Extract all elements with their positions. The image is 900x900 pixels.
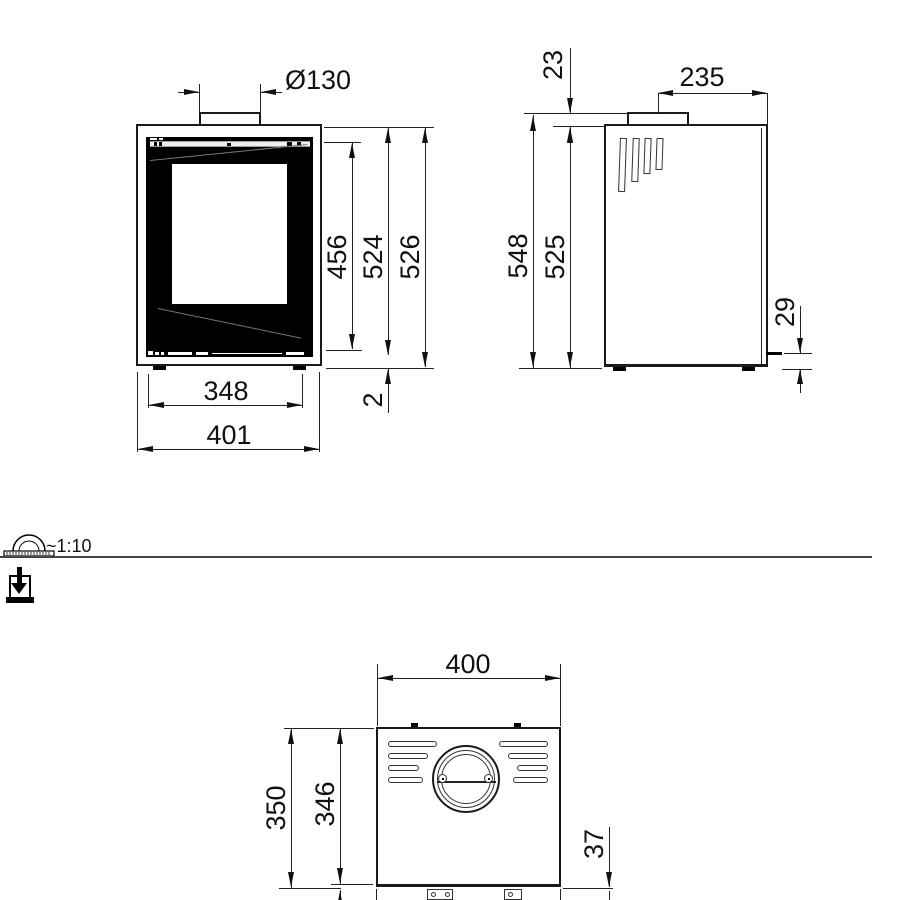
arrowhead-up	[337, 891, 343, 900]
arrowhead-right	[287, 402, 302, 408]
air-control-lever	[196, 352, 208, 355]
shape	[7, 552, 49, 555]
solid-mark	[159, 142, 162, 146]
dimension-line	[340, 728, 341, 884]
arrowhead-down	[385, 340, 391, 355]
arrowhead-up	[288, 729, 294, 744]
dimension-line	[376, 889, 377, 900]
download-arrow-icon	[11, 583, 27, 594]
dimension-line	[761, 128, 762, 364]
side-foot	[742, 367, 755, 371]
highlight-mark	[161, 352, 164, 355]
dimension-line	[284, 728, 374, 729]
solid-mark	[6, 597, 34, 603]
dimension-line	[524, 113, 628, 114]
dim-front-inner-width: 348	[186, 377, 266, 405]
circle-detail	[445, 892, 450, 897]
dimension-line	[658, 94, 659, 113]
scale-label: ~1:10	[46, 536, 92, 557]
dimension-line	[767, 93, 768, 125]
dim-top-depth-body: 346	[311, 764, 339, 844]
dimension-line	[377, 664, 378, 726]
arrowhead-up	[797, 369, 803, 384]
dim-front-body-height: 524	[359, 217, 387, 297]
download-button[interactable]	[6, 566, 38, 606]
arrowhead-up	[385, 128, 391, 143]
arrowhead-down	[567, 352, 573, 367]
dimension-line	[560, 664, 561, 726]
separator-line	[0, 556, 872, 558]
solid-mark	[514, 723, 521, 727]
shape	[13, 535, 45, 551]
front-glass-window	[172, 164, 287, 304]
highlight-mark	[212, 353, 282, 354]
dimension-line	[658, 93, 767, 94]
dimension-line	[137, 372, 138, 452]
front-foot	[293, 366, 306, 370]
top-vent-slot	[517, 765, 548, 771]
dim-top-depth-total: 350	[262, 768, 290, 848]
arrowhead-up	[567, 128, 573, 143]
dim-front-flue-diameter: Ø130	[285, 66, 380, 94]
arrowhead-right	[752, 90, 767, 96]
top-vent-slot	[388, 753, 428, 759]
dim-side-lever-height: 29	[771, 272, 799, 352]
dim-side-total-height: 548	[504, 216, 532, 296]
dimension-line	[533, 115, 534, 368]
top-vent-slot	[388, 741, 437, 747]
solid-mark	[488, 778, 490, 780]
highlight-mark	[286, 352, 304, 355]
arrowhead-up	[422, 128, 428, 143]
damper-rod	[766, 352, 782, 355]
dimension-line	[279, 888, 341, 889]
arrowhead-down	[422, 352, 428, 367]
dimension-line	[352, 143, 353, 349]
dimension-line	[553, 126, 605, 127]
dim-side-collar-height: 23	[539, 25, 567, 105]
dim-side-body-height: 525	[541, 217, 569, 297]
circle-detail	[431, 892, 436, 897]
solid-mark	[17, 567, 22, 584]
highlight-mark	[148, 351, 153, 355]
dim-front-total-width: 401	[189, 421, 269, 449]
arrowhead-down	[349, 334, 355, 349]
dim-side-flue-to-back: 235	[662, 63, 742, 91]
arrowhead-down	[337, 868, 343, 883]
highlight-mark	[159, 138, 163, 140]
top-vent-slot	[513, 777, 548, 783]
arrowhead-right	[545, 675, 560, 681]
arrowhead-up	[530, 116, 536, 131]
dimension-line	[519, 368, 602, 369]
dimension-line	[425, 128, 426, 367]
arrowhead-down	[567, 98, 573, 113]
technical-drawing-page: Ø130 456 524 526 2 348	[0, 0, 900, 900]
arrowhead-up	[337, 729, 343, 744]
top-vent-slot	[388, 765, 419, 771]
arrowhead-down	[288, 872, 294, 887]
arrowhead-right	[184, 89, 199, 95]
dim-top-width: 400	[428, 650, 508, 678]
top-bracket	[504, 889, 522, 900]
side-body	[604, 124, 768, 367]
arrowhead-left	[138, 446, 153, 452]
solid-mark	[154, 142, 157, 146]
dimension-line	[324, 127, 434, 128]
dimension-line	[302, 374, 303, 408]
arrowhead-left	[378, 675, 393, 681]
dim-front-base-gap: 2	[359, 360, 387, 440]
dimension-line	[560, 889, 561, 900]
side-vent-slot	[655, 138, 663, 170]
circle-detail	[508, 892, 513, 897]
dimension-line	[609, 891, 610, 900]
dim-front-total-height: 526	[396, 217, 424, 297]
dimension-line	[563, 888, 613, 889]
arrowhead-left	[261, 89, 276, 95]
solid-mark	[411, 723, 418, 727]
arrowhead-up	[349, 143, 355, 158]
dimension-line	[784, 353, 812, 354]
solid-mark	[227, 143, 231, 146]
front-foot	[153, 366, 166, 370]
dim-top-front-offset: 37	[580, 804, 608, 884]
dimension-line	[331, 884, 373, 885]
arrowhead-down	[530, 352, 536, 367]
shape	[19, 541, 39, 551]
dimension-line	[326, 350, 362, 351]
dimension-line	[319, 372, 320, 452]
dimension-line	[291, 728, 292, 888]
dimension-line	[324, 142, 361, 143]
top-vent-slot	[508, 753, 548, 759]
dimension-line	[388, 128, 389, 355]
air-control-lever	[168, 352, 192, 355]
highlight-mark	[150, 138, 157, 140]
side-vent-slot	[643, 138, 651, 174]
top-vent-slot	[388, 777, 423, 783]
dimension-line	[570, 127, 571, 368]
dimension-line	[199, 84, 200, 112]
side-foot	[613, 367, 626, 371]
highlight-mark	[155, 352, 159, 355]
top-vent-slot	[499, 741, 548, 747]
arrowhead-left	[149, 402, 164, 408]
arrowhead-right	[304, 446, 319, 452]
dim-front-door-height: 456	[323, 217, 351, 297]
solid-mark	[442, 778, 444, 780]
